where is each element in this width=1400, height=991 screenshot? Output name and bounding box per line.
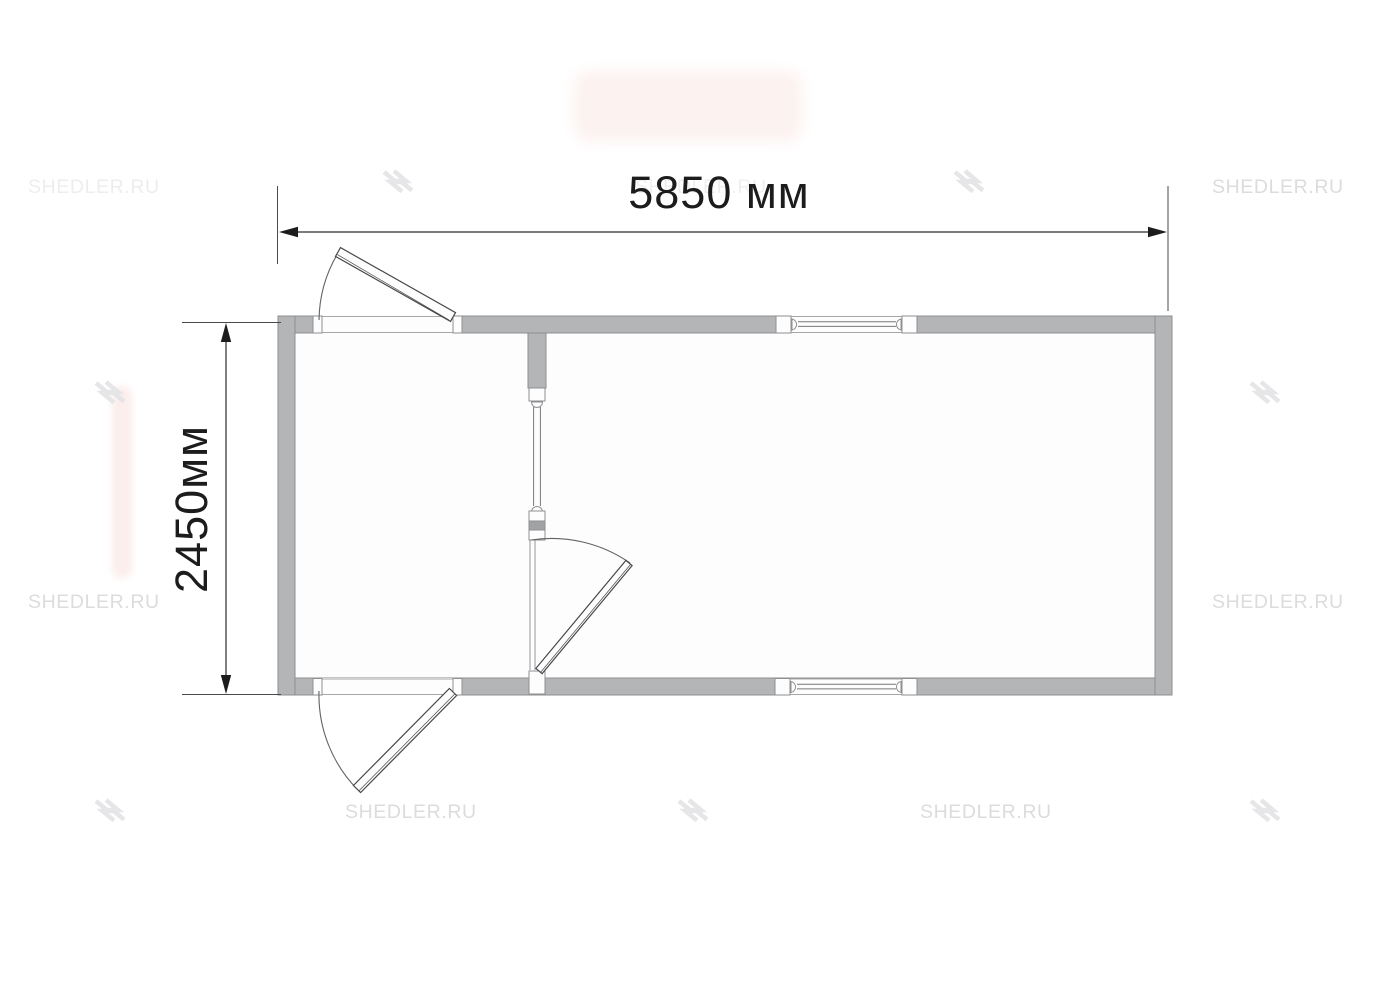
window-opening bbox=[775, 679, 917, 697]
door-head-jamb-band bbox=[529, 521, 545, 530]
door-opening bbox=[313, 678, 462, 696]
door-jamb bbox=[453, 316, 462, 333]
door-head-jamb bbox=[529, 511, 545, 521]
window-jamb bbox=[775, 679, 790, 696]
partition-stub bbox=[528, 333, 546, 388]
window-jamb-bullet bbox=[896, 319, 901, 330]
wall-right bbox=[1155, 316, 1172, 695]
window-jamb-bullet bbox=[792, 319, 797, 330]
screenshot-canvas: SHEDLER.RU SHEDLER.RU SHEDLER.RU SHEDLER… bbox=[0, 0, 1400, 991]
window-jamb-bullet bbox=[896, 682, 901, 693]
floor-plan-drawing: SHEDLER.RU SHEDLER.RU SHEDLER.RU SHEDLER… bbox=[0, 0, 1400, 991]
watermark-text-ghost: SHEDLER.RU bbox=[28, 176, 160, 198]
watermark-text: SHEDLER.RU bbox=[1212, 591, 1344, 613]
window-jamb bbox=[902, 679, 917, 696]
width-dimension-label: 5850 мм bbox=[628, 167, 810, 218]
floor bbox=[278, 316, 1172, 695]
watermark-text: SHEDLER.RU bbox=[345, 801, 477, 823]
wall-left bbox=[278, 316, 295, 695]
window-top bbox=[776, 315, 917, 334]
blur-patch-top bbox=[574, 71, 802, 141]
door-jamb bbox=[313, 679, 322, 696]
window-jamb bbox=[776, 316, 791, 333]
window-jamb-bullet bbox=[791, 682, 796, 693]
window-opening bbox=[776, 315, 917, 334]
partition-bottom-jamb bbox=[529, 671, 545, 694]
blur-strip-left bbox=[112, 386, 132, 578]
window-jamb bbox=[902, 316, 917, 333]
watermark-text: SHEDLER.RU bbox=[28, 591, 160, 613]
door-jamb bbox=[313, 316, 322, 333]
watermark-text: SHEDLER.RU bbox=[1212, 176, 1344, 198]
window-bottom bbox=[775, 679, 917, 697]
door-opening bbox=[313, 315, 462, 334]
watermark-text: SHEDLER.RU bbox=[920, 801, 1052, 823]
height-dimension-label: 2450мм bbox=[166, 425, 217, 593]
partition-jamb bbox=[529, 388, 545, 401]
